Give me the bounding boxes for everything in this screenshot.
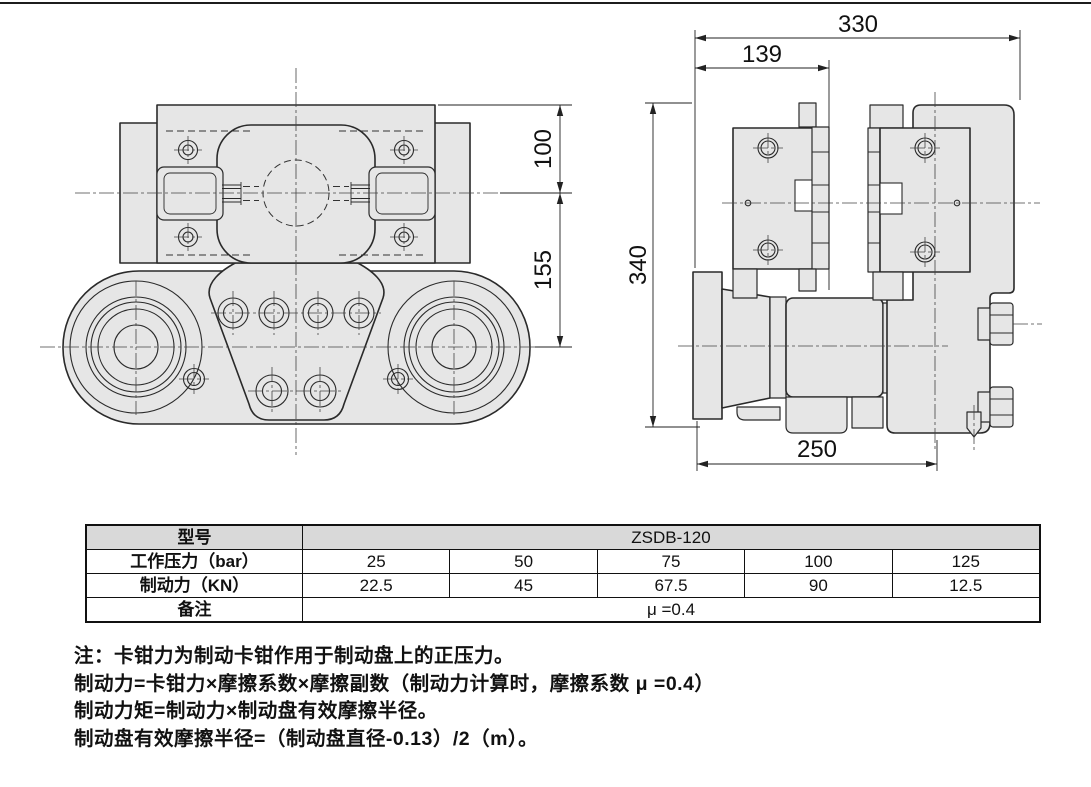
- actuator-neck: [770, 297, 786, 398]
- front-view-drawing: 100 155: [40, 68, 572, 455]
- remark-label-cell: 备注: [87, 597, 302, 621]
- pressure-value-cell: 75: [597, 549, 744, 573]
- catalog-page: 100 155: [0, 0, 1091, 787]
- force-value-cell: 90: [744, 573, 891, 597]
- pressure-value-cell: 125: [892, 549, 1039, 573]
- actuator-cone: [722, 289, 770, 408]
- note-line: 制动力矩=制动力×制动盘有效摩擦半径。: [74, 698, 1054, 726]
- force-value-cell: 12.5: [892, 573, 1039, 597]
- force-value-cell: 22.5: [302, 573, 449, 597]
- force-value-cell: 45: [449, 573, 596, 597]
- brake-caliper-drawings: 100 155: [0, 0, 1091, 520]
- dim-155-label: 155: [530, 250, 557, 290]
- pressure-value-cell: 50: [449, 549, 596, 573]
- force-value-cell: 67.5: [597, 573, 744, 597]
- left-pad-assembly: [733, 103, 829, 298]
- dim-139-label: 139: [742, 41, 782, 68]
- cylinder-under-block: [786, 397, 847, 433]
- force-label-cell: 制动力（KN）: [87, 573, 302, 597]
- right-pad-assembly: [868, 105, 970, 300]
- actuator-foot: [737, 407, 780, 420]
- dim-250-label: 250: [797, 436, 837, 463]
- actuator-flange: [693, 272, 722, 419]
- actuator-cylinder: [786, 298, 883, 397]
- pressure-value-cell: 100: [744, 549, 891, 573]
- note-line: 注：卡钳力为制动卡钳作用于制动盘上的正压力。: [74, 643, 1054, 671]
- model-value-cell: ZSDB-120: [302, 526, 1039, 549]
- spec-table: 型号 ZSDB-120 工作压力（bar） 25 50 75 100 125 制…: [85, 524, 1041, 623]
- dim-100-label: 100: [530, 129, 557, 169]
- dim-330-label: 330: [838, 11, 878, 38]
- model-label-cell: 型号: [87, 526, 302, 549]
- dim-340-label: 340: [625, 245, 652, 285]
- pressure-label-cell: 工作压力（bar）: [87, 549, 302, 573]
- note-line: 制动力=卡钳力×摩擦系数×摩擦副数（制动力计算时，摩擦系数 μ =0.4）: [74, 671, 1054, 699]
- remark-value-cell: μ =0.4: [302, 597, 1039, 621]
- side-view-drawing: 330 139 340 250: [625, 11, 1042, 471]
- cylinder-step-block: [852, 397, 883, 428]
- notes-block: 注：卡钳力为制动卡钳作用于制动盘上的正压力。 制动力=卡钳力×摩擦系数×摩擦副数…: [74, 643, 1054, 753]
- note-line: 制动盘有效摩擦半径=（制动盘直径-0.13）/2（m）。: [74, 726, 1054, 754]
- pressure-value-cell: 25: [302, 549, 449, 573]
